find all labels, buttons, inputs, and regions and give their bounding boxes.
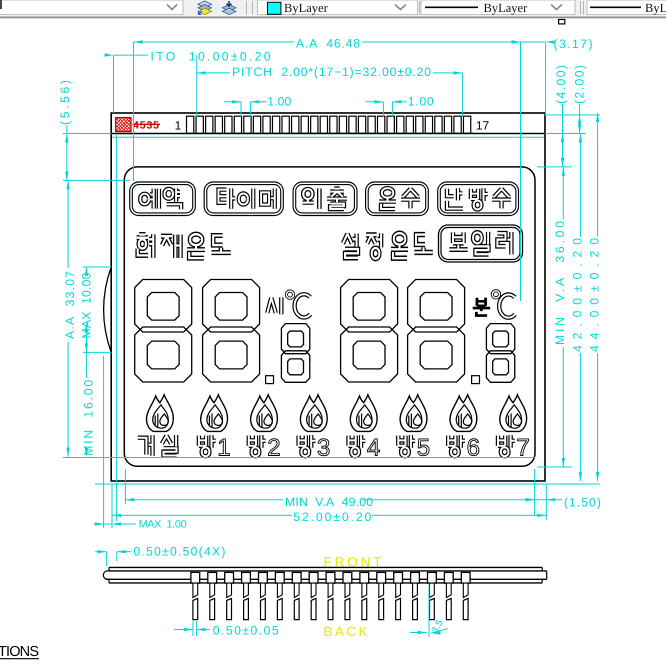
svg-text:ByLayer: ByLayer — [484, 1, 529, 15]
svg-text:1.00: 1.00 — [408, 94, 434, 108]
svg-text:MIN V.A 49.00: MIN V.A 49.00 — [285, 495, 373, 509]
svg-text:A.A 46.48: A.A 46.48 — [296, 36, 360, 50]
svg-text:(2.00): (2.00) — [573, 65, 587, 104]
svg-text:17: 17 — [476, 119, 490, 133]
svg-text:MIN 16.00: MIN 16.00 — [82, 380, 96, 456]
svg-text:4535: 4535 — [133, 119, 159, 131]
svg-text:1: 1 — [175, 119, 182, 133]
svg-text:BACK: BACK — [324, 624, 368, 639]
svg-text:(5.56): (5.56) — [58, 80, 72, 125]
svg-text:(1.50): (1.50) — [564, 495, 601, 509]
svg-text:52.00±0.20: 52.00±0.20 — [293, 510, 371, 524]
svg-text:A.A 33.07: A.A 33.07 — [63, 271, 77, 339]
svg-text:TIONS: TIONS — [0, 644, 39, 660]
svg-text:1.00: 1.00 — [267, 94, 291, 108]
svg-text:0.50±0.50(4X): 0.50±0.50(4X) — [133, 545, 225, 559]
svg-text:MAX 1.00: MAX 1.00 — [139, 519, 187, 531]
svg-text:(4.00): (4.00) — [554, 65, 568, 104]
svg-text:ByLayer: ByLayer — [284, 1, 329, 15]
svg-text:0.50±0.05: 0.50±0.05 — [213, 624, 279, 638]
svg-text:ByLayer: ByLayer — [645, 1, 666, 15]
svg-text:(3.17): (3.17) — [554, 37, 593, 51]
svg-text:PITCH 2.00*(17−1)=32.00±0.20: PITCH 2.00*(17−1)=32.00±0.20 — [232, 65, 431, 79]
